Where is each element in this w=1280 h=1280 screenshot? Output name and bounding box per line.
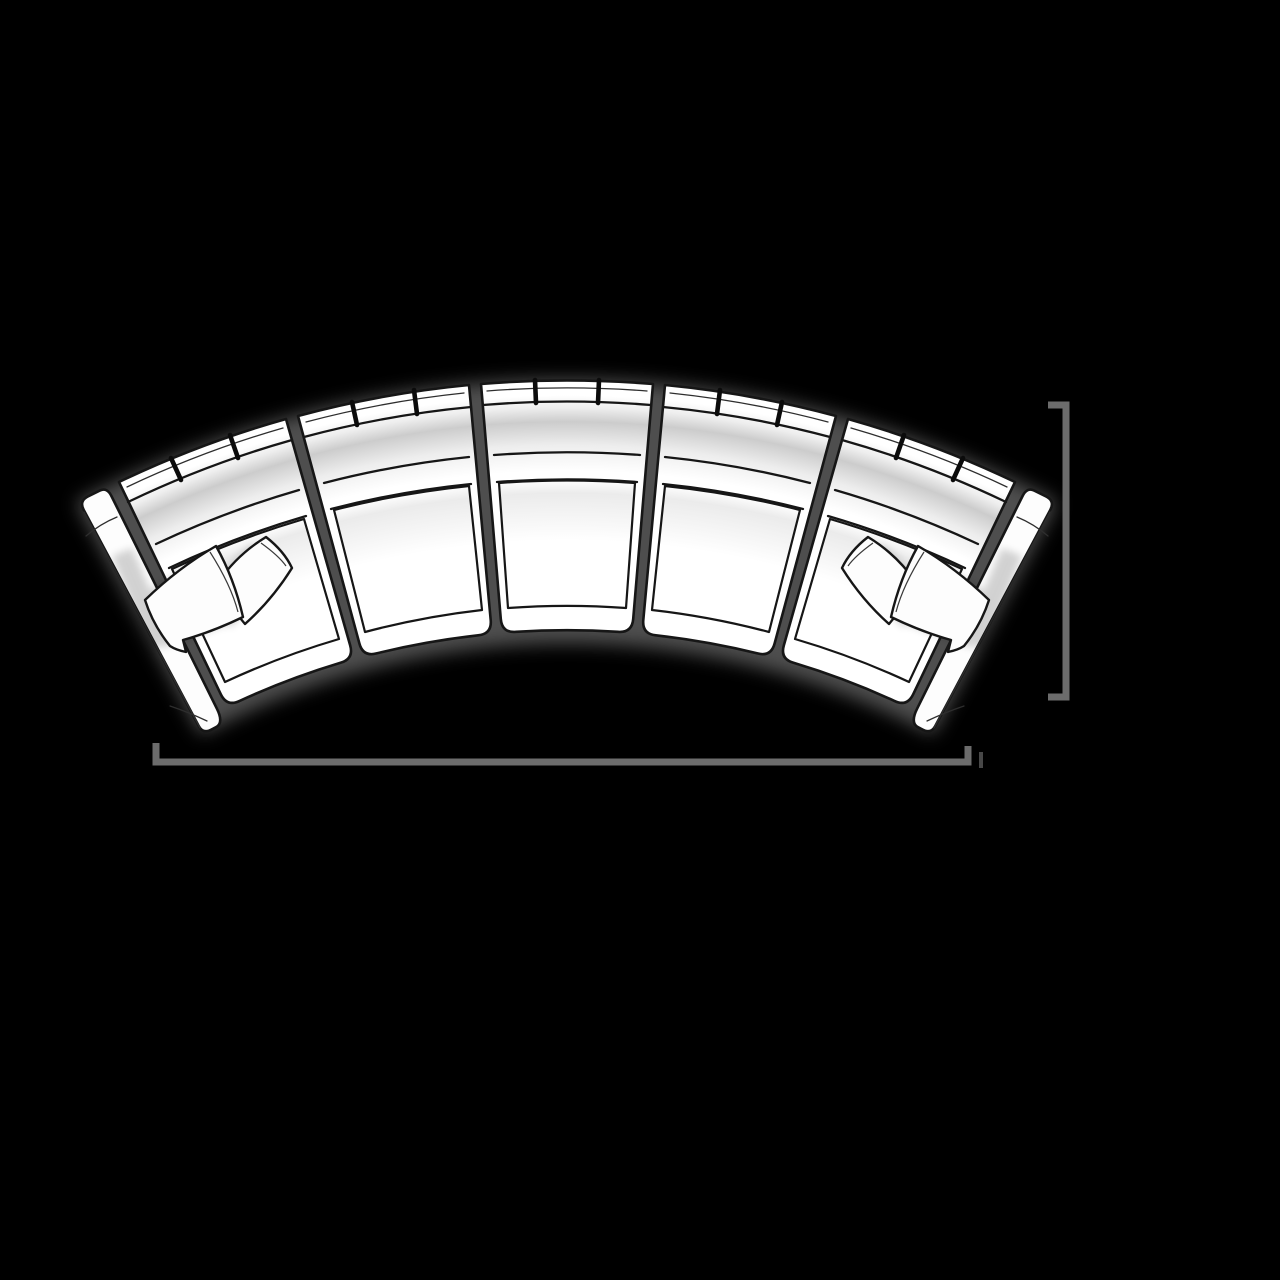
back-tick	[535, 380, 536, 403]
back-tick	[414, 390, 417, 414]
dimension-bracket-right	[1048, 405, 1066, 697]
dimension-bracket-bottom	[156, 743, 968, 762]
back-tick	[598, 380, 599, 403]
sofa[interactable]	[82, 380, 1052, 731]
back-tick	[717, 390, 720, 414]
sofa-top-view-rendering	[0, 0, 1280, 1280]
seat-cushion-center	[499, 481, 635, 608]
canvas	[0, 0, 1280, 1280]
